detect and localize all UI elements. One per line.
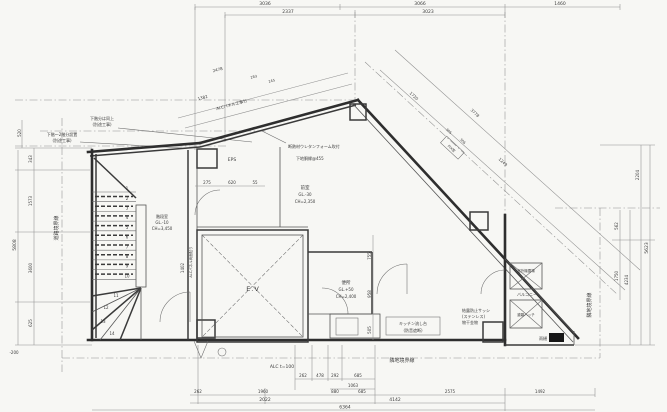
callout-note: 下階分は同上 (90, 115, 114, 121)
stair-step-number: 10 (124, 273, 130, 278)
toilet-room: 便所 GL.+50 CH=2,400 (308, 252, 372, 314)
stair-step-number: 13 (100, 319, 106, 324)
stair-room-label: GL.-10 (155, 220, 169, 225)
sash-note: 結露防止サッシ (462, 307, 490, 313)
dim-label: 520 (17, 129, 22, 137)
stair-step-number: 8 (126, 254, 129, 259)
callout-note: 下階〜2階分設置 (47, 131, 78, 137)
dim-label: 306 (459, 138, 467, 145)
dim-label: 3036 (259, 1, 271, 7)
dim-label: 562 (614, 222, 619, 230)
insulation-note: 断熱材ウレタンフォーム吹付 (288, 143, 340, 149)
stair-step-number: 14 (109, 331, 115, 336)
sash-note: 物干金物 (462, 319, 478, 325)
dim-label: 685 (354, 373, 362, 378)
grid-lines (15, 10, 660, 372)
balcony-label: バルコニー (517, 292, 537, 297)
dim-label: 2575 (445, 389, 456, 394)
stair-room-label: CH=3,450 (152, 226, 173, 231)
alc-wall-note: ALCパネル両面貼り (188, 246, 193, 277)
left-dimension-chain: 5808 520 343 1573 3600 625 -200 道路境界線 (9, 120, 92, 355)
dim-label: 958 (367, 290, 372, 298)
gutter-label: 雨樋 (539, 335, 547, 341)
dim-label: 1492 (535, 389, 546, 394)
staircase: 1 2 3 4 5 6 7 8 9 10 11 12 13 14 階段室 GL.… (92, 150, 193, 340)
outdoor-unit-label: 室外機置場 (517, 268, 535, 273)
elevator-label: E.V (246, 285, 260, 293)
diagonal-dimensions-right: 1720 3778 305 306 1249 FIX窓 (380, 50, 640, 290)
dim-label: 262 (194, 389, 202, 394)
eps-label: EPS (228, 157, 237, 163)
dim-label: 3778 (470, 108, 481, 119)
columns (197, 104, 503, 342)
dim-label: 1960 (258, 389, 269, 394)
dim-label: 5623 (644, 242, 650, 254)
interior-walls (160, 147, 505, 322)
dim-label: 3066 (414, 1, 426, 7)
dim-label: 880 (331, 389, 339, 394)
front-room-label: CH=2,350 (295, 199, 316, 204)
dim-label: 1750 (614, 270, 619, 281)
alc-panel-note: ALCパネル工事分 (215, 97, 247, 111)
dim-label: 1720 (409, 91, 420, 102)
eps-shaft: EPS (197, 149, 236, 168)
stair-step-number: 9 (126, 264, 129, 269)
stair-step-number: 12 (103, 305, 109, 310)
dim-label: 4142 (389, 397, 401, 403)
dim-label: 4234 (624, 274, 629, 285)
dim-label: 620 (228, 180, 236, 185)
diagonal-dimensions-left: 2478 283 245 1382 ALCパネル工事分 (178, 66, 352, 128)
stair-step-number: 6 (126, 235, 129, 240)
toilet-label: GL.+50 (338, 287, 353, 292)
dim-label: 685 (358, 389, 366, 394)
alc-note: ALC t=100 (270, 364, 294, 370)
kitchen-label: キッチン流し台 (399, 320, 427, 326)
dim-label: 5808 (12, 239, 18, 251)
dim-label: 3600 (28, 262, 33, 273)
dim-label: 1460 (554, 1, 566, 7)
floor-plan-drawing: 3036 3066 1460 2337 3023 5808 520 343 15… (0, 0, 667, 412)
dim-label: 343 (28, 155, 33, 163)
dim-label: 292 (331, 373, 339, 378)
kitchen-label: (防音遮断) (403, 327, 423, 333)
dim-label: 262 (299, 373, 307, 378)
stair-step-number: 3 (126, 206, 129, 211)
stair-step-number: 2 (126, 196, 129, 201)
dim-label: 755 (367, 252, 372, 260)
gutter-mark (549, 333, 564, 342)
dim-label: 2337 (282, 9, 294, 15)
callout-note: (別途工事) (92, 121, 112, 127)
stair-step-number: 7 (126, 244, 129, 249)
dim-label: 283 (250, 74, 257, 80)
kitchen-counter: キッチン流し台 (防音遮断) (330, 314, 440, 338)
dim-label: 55 (252, 180, 258, 185)
room-notes: 断熱材ウレタンフォーム吹付 下地胴縁@455 前室 GL.-30 CH=2,35… (180, 131, 490, 340)
dim-label: 1249 (498, 157, 509, 168)
dim-label: -200 (9, 350, 19, 355)
site-boundary-label: 隣地境界線 (389, 357, 414, 364)
stair-step-number: 11 (113, 293, 119, 298)
dim-label: 1573 (28, 195, 33, 206)
dim-label: 1402 (180, 262, 185, 273)
dim-label: 6364 (339, 405, 351, 411)
bottom-dimension-chain: 262 478 292 685 1063 262 1960 880 685 25… (92, 345, 595, 411)
escape-hatch-label: 避難ハッチ (517, 312, 535, 317)
road-boundary-label: 道路境界線 (53, 215, 60, 240)
floor-plan-sheet: 3036 3066 1460 2337 3023 5808 520 343 15… (0, 0, 667, 412)
dim-label: 3023 (422, 9, 434, 15)
dim-label: 245 (268, 78, 275, 84)
front-room-label: GL.-30 (298, 192, 312, 197)
dim-label: 2022 (259, 397, 271, 403)
stair-room-label: 階段室 (156, 213, 168, 219)
toilet-label: CH=2,400 (336, 294, 357, 299)
callout-note: (別途工事) (52, 137, 72, 143)
dim-label: 625 (28, 319, 33, 327)
site-boundary-label: 隣地境界線 (586, 292, 593, 317)
furring-note: 下地胴縁@455 (296, 155, 324, 161)
dim-label: 275 (203, 180, 211, 185)
dim-label: 505 (367, 326, 372, 334)
front-room-label: 前室 (301, 184, 310, 191)
stair-step-number: 5 (126, 225, 129, 230)
toilet-label: 便所 (342, 279, 351, 286)
dim-label: 2478 (212, 66, 224, 74)
sash-note: (ステンレス) (462, 313, 486, 319)
stair-step-number: 1 (126, 186, 129, 191)
dim-label: 1063 (348, 383, 359, 388)
callout-notes: 下階分は同上 (別途工事) 下階〜2階分設置 (別途工事) (47, 115, 252, 148)
stair-step-number: 4 (126, 215, 129, 220)
right-dimension-chain: 2204 562 1750 4234 5623 隣地境界線 (575, 145, 655, 345)
dim-label: 478 (316, 373, 324, 378)
dim-label: 2204 (635, 169, 640, 180)
